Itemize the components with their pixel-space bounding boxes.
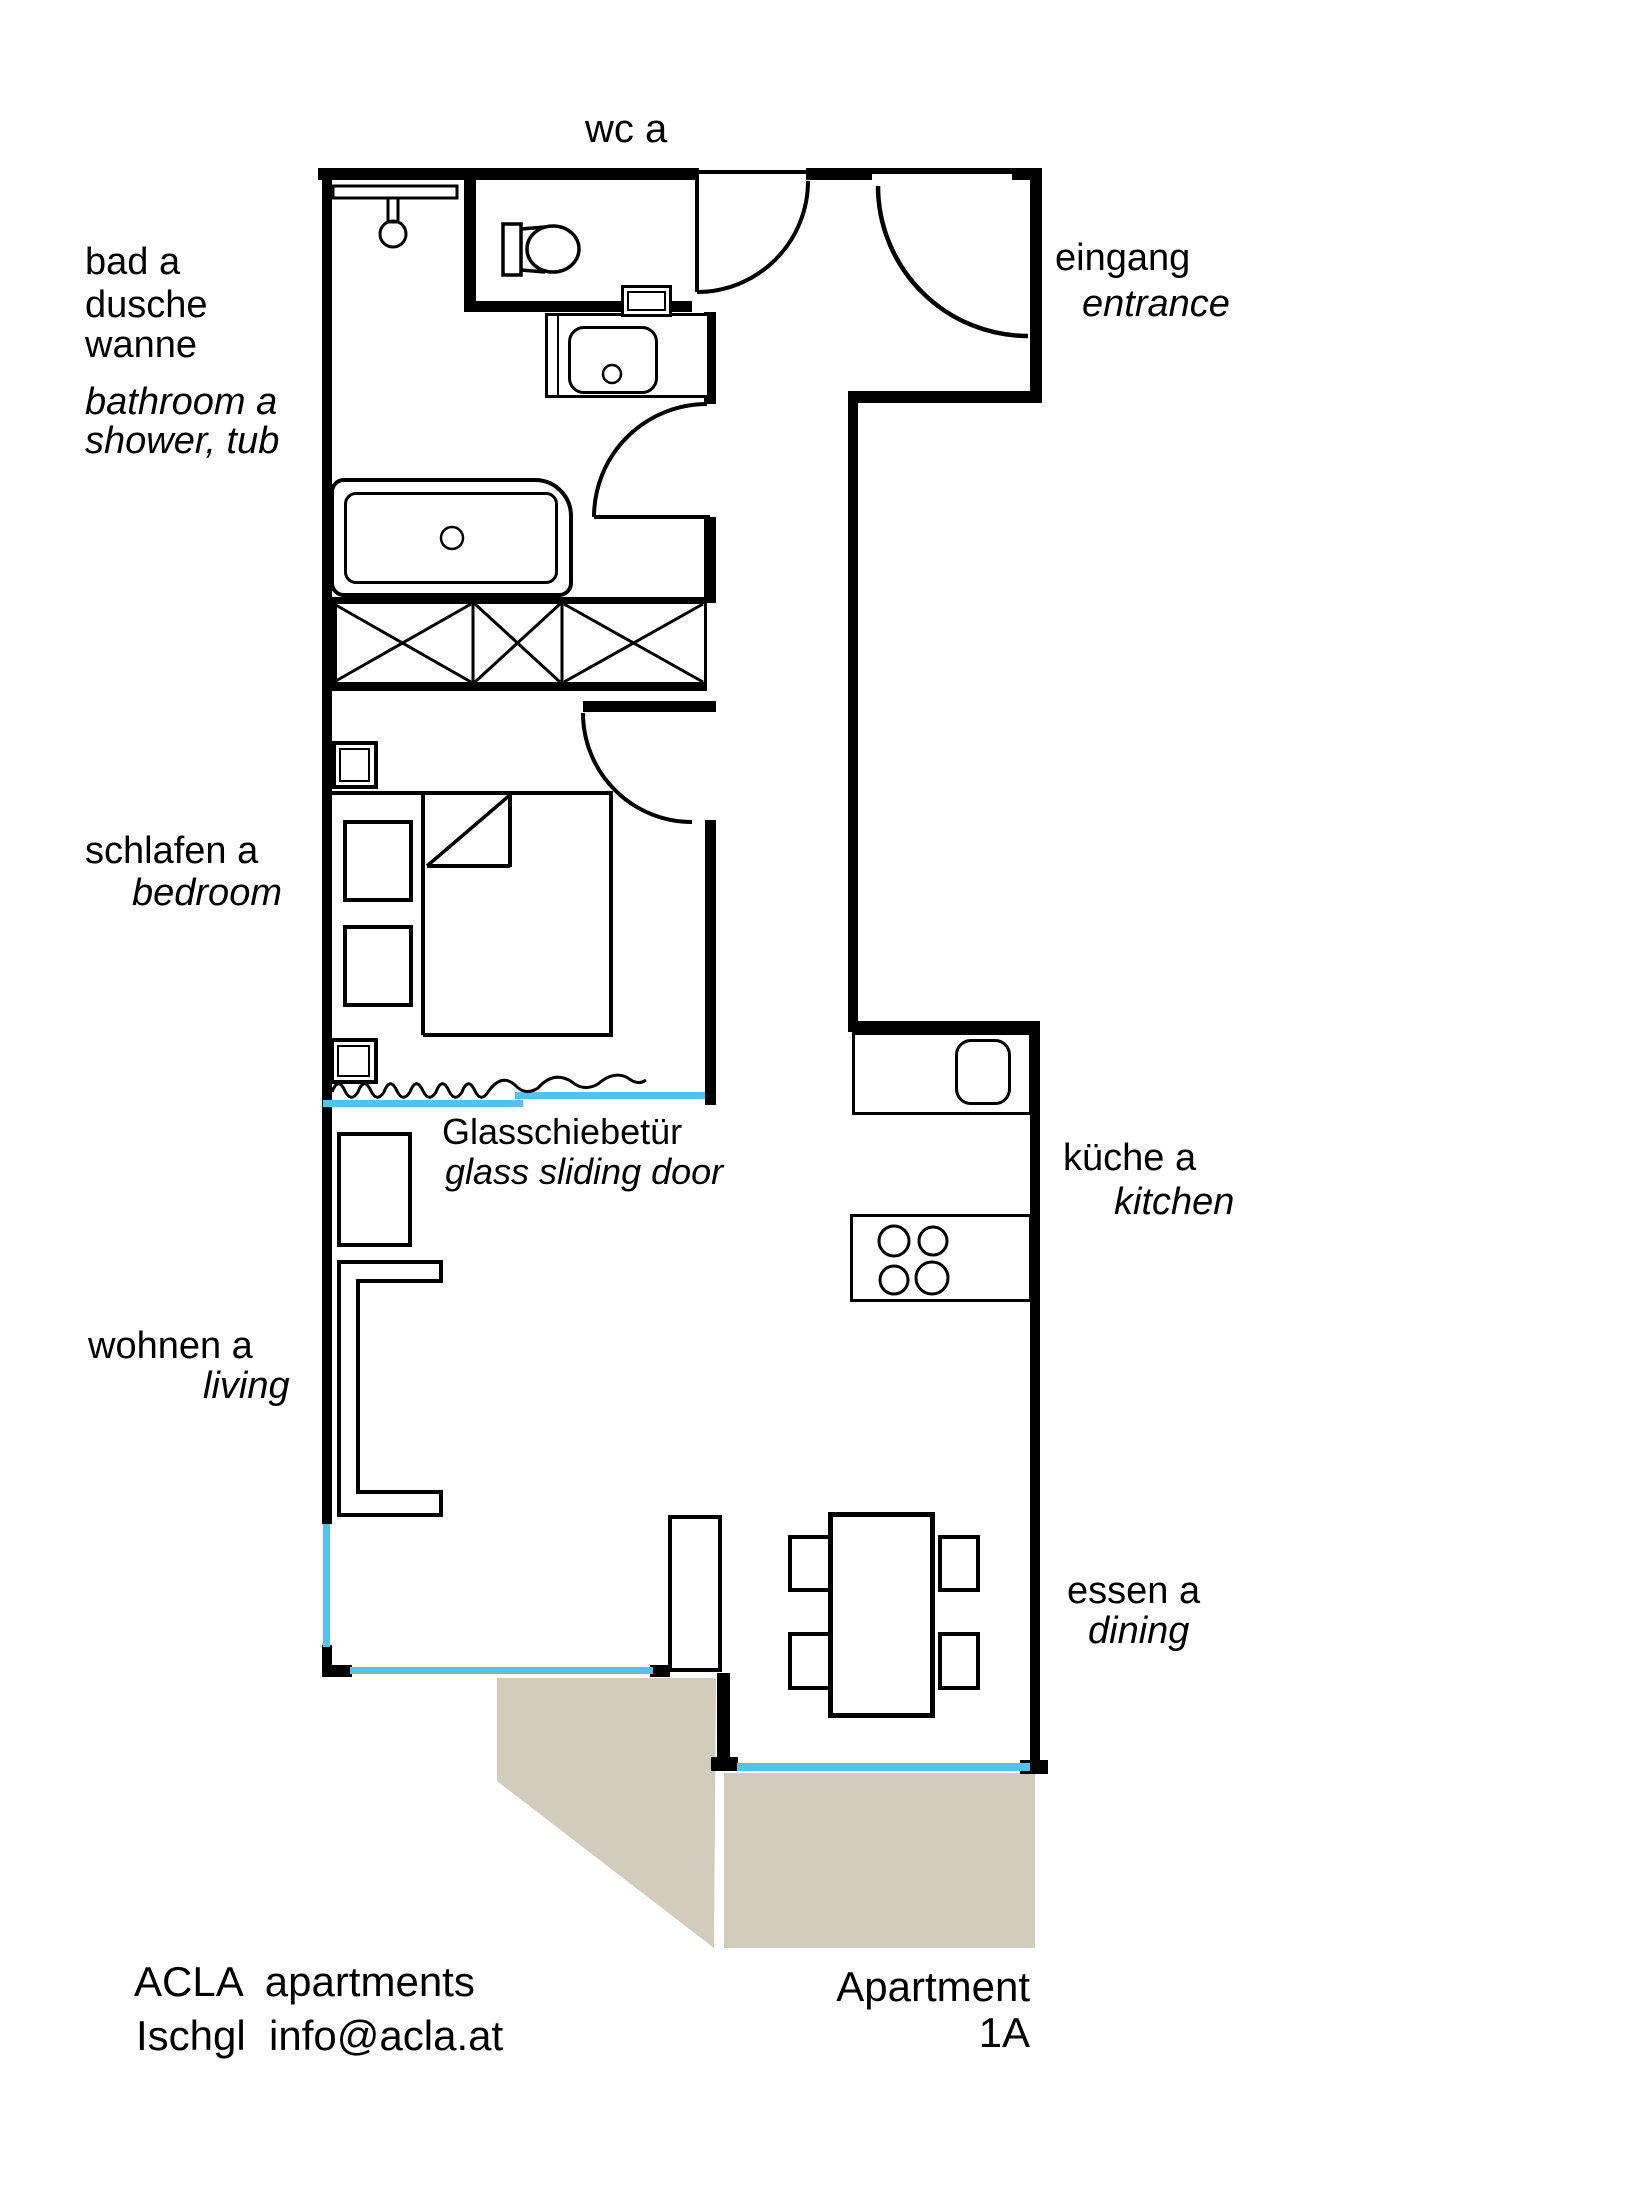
door-entrance [878, 186, 1028, 336]
toilet [503, 224, 579, 275]
washbasin-drain-icon [603, 365, 621, 383]
label-bathroom-de3: wanne [85, 325, 197, 366]
label-bedroom-de: schlafen a [85, 831, 258, 872]
bed [330, 793, 613, 1035]
label-living-de: wohnen a [88, 1326, 253, 1367]
bathtub-drain-icon [441, 527, 463, 549]
label-wc: wc a [585, 108, 667, 151]
door-bathroom [594, 404, 710, 517]
label-bathroom-de1: bad a [85, 242, 180, 283]
footer-brand-line2: Ischgl info@acla.at [136, 2013, 503, 2058]
label-sliding-door-de: Glasschiebetür [442, 1113, 682, 1152]
door-bedroom [583, 713, 692, 822]
curtain-squiggle [332, 1075, 646, 1097]
washbasin-detail [558, 313, 621, 398]
label-bathroom-en1: bathroom a [85, 382, 277, 423]
wardrobe-x-pattern [334, 600, 703, 688]
label-living-en: living [203, 1366, 290, 1407]
label-sliding-door-en: glass sliding door [445, 1153, 723, 1192]
floor-plan: wc a bad a dusche wanne bathroom a showe… [0, 0, 1650, 2200]
label-dining-en: dining [1088, 1611, 1189, 1652]
cooktop-burners [879, 1226, 948, 1294]
door-wc [697, 180, 808, 292]
footer-apartment-line2: 1A [979, 2010, 1030, 2055]
label-bedroom-en: bedroom [132, 873, 282, 914]
footer-brand-line1: ACLA apartments [134, 1959, 475, 2004]
label-dining-de: essen a [1067, 1571, 1200, 1612]
footer-apartment-line1: Apartment [836, 1964, 1030, 2009]
label-kitchen-de: küche a [1063, 1138, 1196, 1179]
label-entrance-de: eingang [1055, 238, 1190, 279]
shower-head [333, 186, 457, 247]
label-entrance-en: entrance [1082, 284, 1230, 325]
label-kitchen-en: kitchen [1114, 1182, 1234, 1223]
label-bathroom-en2: shower, tub [85, 421, 279, 462]
label-bathroom-de2: dusche [85, 285, 208, 326]
